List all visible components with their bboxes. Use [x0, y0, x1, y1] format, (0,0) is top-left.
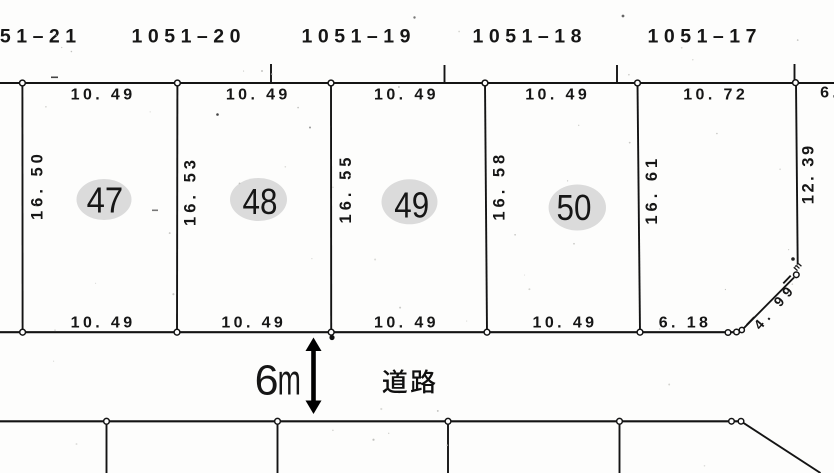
svg-text:1051–17: 1051–17 [648, 26, 762, 48]
svg-text:6: 6 [255, 357, 279, 405]
svg-text:10. 49: 10. 49 [221, 314, 286, 331]
svg-text:10. 49: 10. 49 [71, 314, 136, 331]
svg-text:10. 49: 10. 49 [374, 87, 439, 104]
svg-text:6.: 6. [820, 85, 834, 102]
svg-text:50: 50 [557, 188, 592, 229]
svg-text:16. 58: 16. 58 [491, 151, 509, 221]
svg-text:1051–19: 1051–19 [302, 26, 416, 48]
svg-text:10. 49: 10. 49 [533, 314, 598, 331]
svg-text:16. 61: 16. 61 [643, 155, 661, 225]
svg-text:12. 39: 12. 39 [799, 143, 817, 204]
svg-text:10. 49: 10. 49 [71, 87, 136, 104]
svg-text:48: 48 [243, 182, 278, 223]
svg-text:1051–18: 1051–18 [473, 26, 587, 48]
svg-text:10. 49: 10. 49 [525, 87, 590, 104]
svg-text:10. 49: 10. 49 [226, 87, 291, 104]
svg-text:6. 18: 6. 18 [659, 314, 712, 331]
svg-text:1051–20: 1051–20 [132, 26, 246, 48]
svg-text:10. 72: 10. 72 [683, 87, 748, 104]
svg-text:16. 50: 16. 50 [28, 150, 46, 220]
svg-text:16. 55: 16. 55 [337, 154, 355, 224]
svg-text:47: 47 [87, 181, 124, 221]
svg-text:1051–21: 1051–21 [0, 26, 82, 48]
svg-text:49: 49 [394, 185, 429, 226]
svg-text:m: m [278, 355, 301, 404]
svg-text:10. 49: 10. 49 [374, 314, 439, 331]
svg-text:16. 53: 16. 53 [182, 156, 200, 226]
